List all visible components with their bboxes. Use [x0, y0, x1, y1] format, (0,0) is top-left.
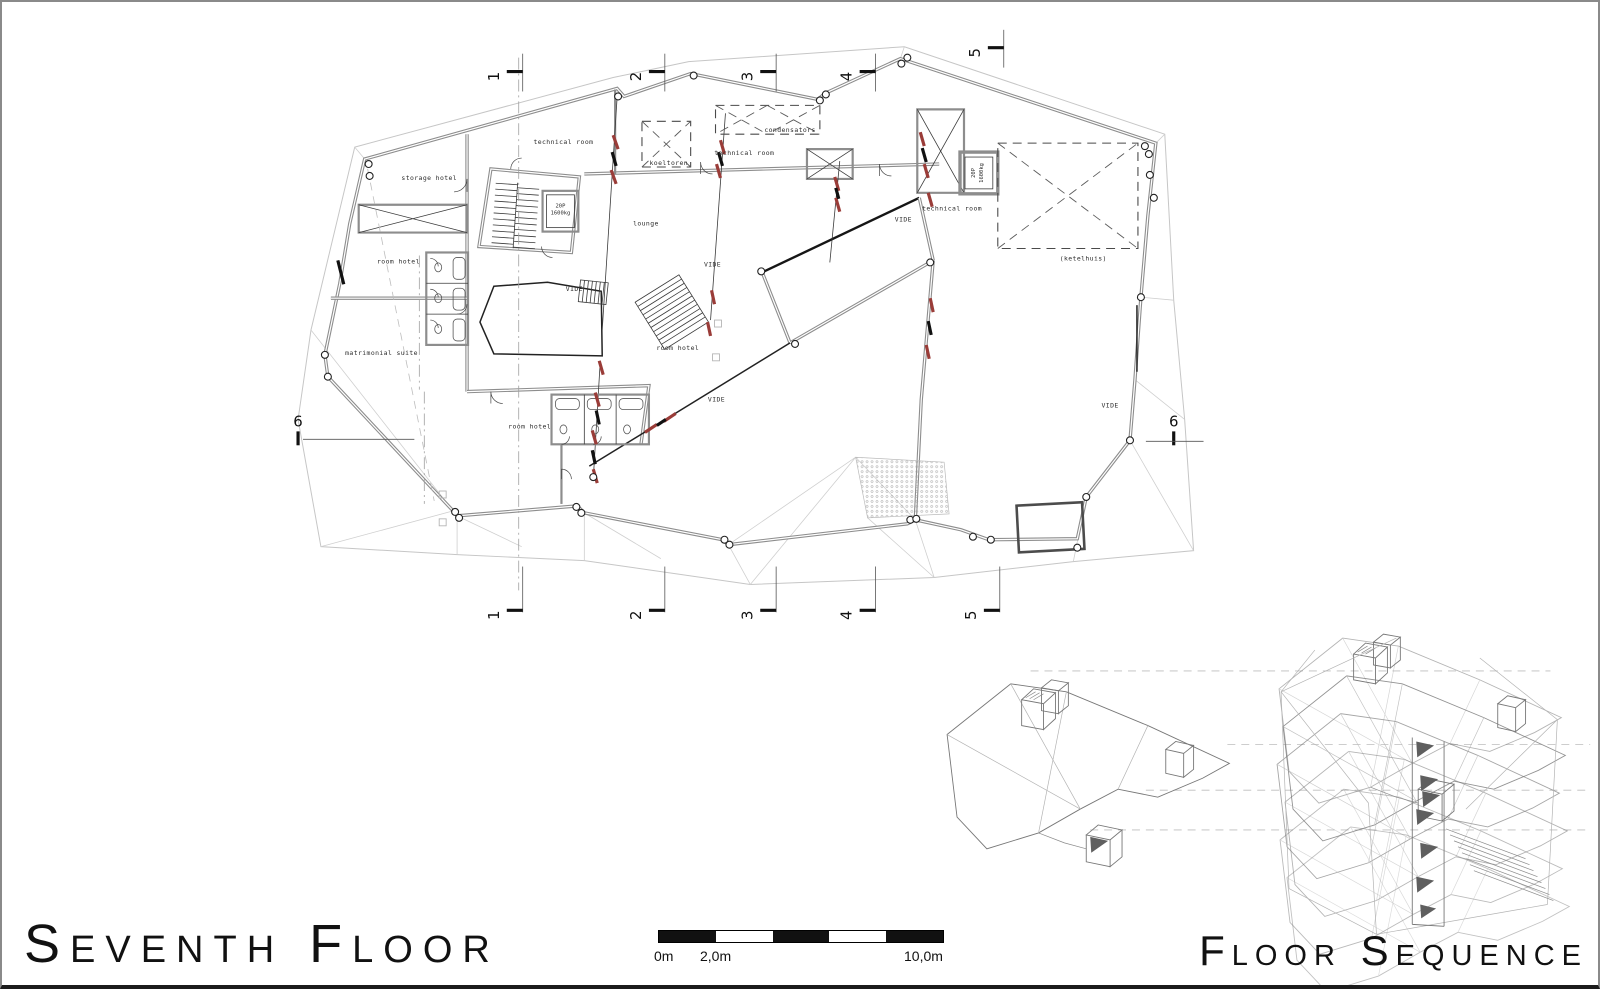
svg-text:4: 4	[838, 72, 856, 81]
label-vide-small: VIDE	[566, 285, 583, 293]
grid-marker-bottom-5: 5	[962, 567, 1000, 620]
label-vide-right: VIDE	[1102, 402, 1119, 410]
grid-marker-bottom-2: 2	[627, 567, 665, 620]
svg-text:5: 5	[966, 48, 984, 57]
outer-wall	[325, 59, 1156, 545]
label-room-hotel-left: room hotel	[377, 257, 420, 265]
drawing-sheet: 20P 1600kg 20P 1600kg	[0, 0, 1600, 989]
structural-box-mid	[807, 149, 853, 179]
scale-label-0m: 0m	[654, 948, 673, 964]
svg-text:1: 1	[485, 611, 503, 620]
scale-segment	[829, 931, 886, 942]
svg-text:6: 6	[293, 412, 302, 430]
grid-markers: 1 2 3 4 5 1 2 3	[293, 30, 1203, 620]
label-lounge: lounge	[633, 220, 659, 228]
svg-text:3: 3	[738, 611, 756, 620]
structural-box-left	[359, 205, 467, 233]
svg-text:1: 1	[485, 72, 503, 81]
svg-text:4: 4	[838, 611, 856, 620]
grid-marker-bottom-3: 3	[738, 567, 776, 620]
column-markers	[321, 54, 1157, 551]
svg-text:2: 2	[627, 611, 645, 620]
scale-segment	[659, 931, 716, 942]
label-koeltoren: koeltoren	[650, 159, 689, 167]
label-technical-room-right: technical room	[922, 205, 982, 213]
label-ketelhuis: (ketelhuis)	[1060, 254, 1107, 262]
label-vide-center: VIDE	[895, 216, 912, 224]
elevator-load-label: 1600kg	[551, 211, 571, 217]
elevator-right-capacity-label: 20P	[971, 167, 977, 178]
scale-segment	[716, 931, 773, 942]
bathroom-pod-bottom	[552, 395, 649, 445]
ketelhuis-zone	[998, 143, 1138, 248]
label-room-hotel-center: room hotel	[656, 344, 699, 352]
level-connector-lines	[1031, 671, 1591, 830]
grid-marker-top-5: 5	[966, 30, 1004, 68]
scale-segment	[773, 931, 830, 942]
scale-segment	[886, 931, 943, 942]
label-room-hotel-bottom: room hotel	[508, 422, 551, 430]
stair-treads-central	[491, 181, 539, 249]
floor-plan-drawing: 20P 1600kg 20P 1600kg	[2, 2, 1598, 985]
elevator-right: 20P 1600kg	[960, 152, 998, 194]
scale-label-10m: 10,0m	[904, 948, 943, 964]
grid-marker-right-6: 6	[1146, 412, 1204, 445]
room-labels: technical room technical room technical …	[345, 126, 1119, 430]
label-vide-mid: VIDE	[704, 260, 721, 268]
svg-text:3: 3	[738, 72, 756, 81]
title-floor-sequence: Floor Sequence	[1199, 927, 1588, 975]
grid-marker-bottom-1: 1	[485, 567, 523, 620]
service-box	[1017, 502, 1085, 552]
svg-text:2: 2	[627, 72, 645, 81]
scale-bar	[658, 930, 944, 943]
hatch-panel	[856, 457, 949, 518]
svg-text:5: 5	[962, 611, 980, 620]
stair-core-central: 20P 1600kg	[479, 169, 579, 252]
title-seventh-floor: Seventh Floor	[24, 913, 500, 975]
label-technical-room-top: technical room	[533, 138, 593, 146]
stair-diagonal	[635, 275, 708, 350]
scale-label-2m: 2,0m	[700, 948, 731, 964]
grid-marker-top-1: 1	[485, 54, 523, 92]
label-condensators: condensators	[764, 126, 815, 134]
label-storage-hotel: storage hotel	[401, 174, 457, 182]
axon-current-floor	[947, 680, 1229, 867]
label-technical-room-mid: technical room	[714, 149, 774, 157]
elevator-capacity-label: 20P	[556, 204, 567, 210]
label-vide-lower: VIDE	[708, 396, 725, 404]
grid-marker-bottom-4: 4	[838, 567, 876, 620]
elevator-right-load-label: 1600kg	[979, 163, 985, 183]
grid-marker-left-6: 6	[293, 412, 414, 445]
label-matrimonial-suite: matrimonial suite	[345, 349, 418, 357]
svg-text:6: 6	[1169, 412, 1178, 430]
